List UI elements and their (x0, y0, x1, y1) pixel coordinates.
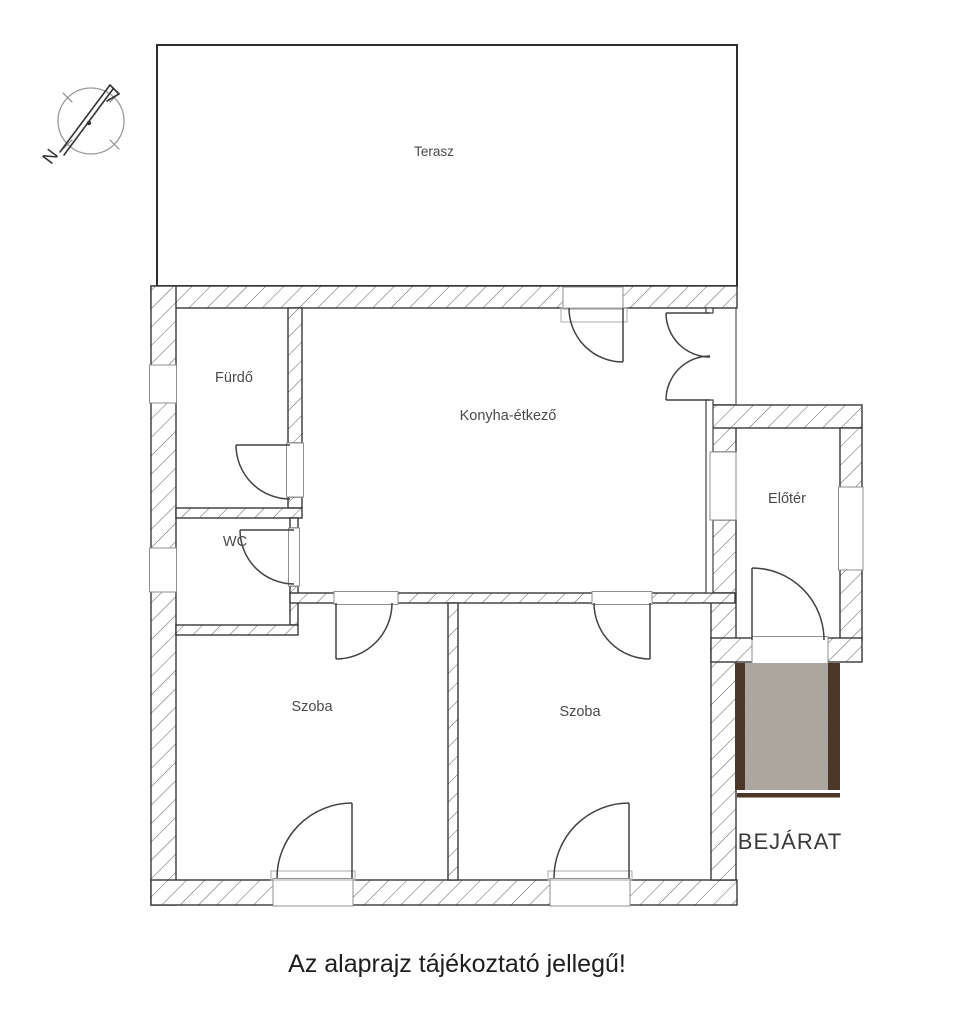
compass-north-letter: N (38, 145, 62, 167)
window-foyer-right (839, 487, 864, 570)
window-bottom-1 (273, 879, 353, 907)
entrance-threshold-line (737, 793, 840, 798)
room-label-wc: WC (223, 534, 247, 550)
compass-north-icon: N (38, 85, 124, 168)
kitchen-double-door-lower-swing (666, 356, 710, 400)
entrance-wood-strip-right (828, 663, 840, 790)
room-label-szoba-2: Szoba (559, 704, 601, 720)
window-left-2 (150, 548, 177, 592)
room1-door-swing (336, 603, 392, 659)
room-label-terasz: Terasz (414, 144, 454, 159)
wall-gap-foyer-left (710, 452, 736, 520)
wall-top (151, 286, 737, 308)
room-label-szoba-1: Szoba (291, 699, 333, 715)
wall-right-mid (711, 520, 736, 593)
wall-wc-right-upper (290, 518, 298, 528)
disclaimer-caption: Az alaprajz tájékoztató jellegű! (288, 950, 626, 978)
room-label-eloter: Előtér (768, 491, 806, 507)
wall-right-lower (711, 593, 736, 880)
terrace-door-swing (569, 308, 623, 362)
terrace-area (157, 45, 737, 286)
wall-bathroom-right (288, 308, 302, 443)
wall-foyer-top (711, 405, 862, 428)
wall-bathroom-right-stub (288, 497, 302, 508)
walls (151, 286, 862, 905)
entrance-pad (735, 663, 840, 798)
floorplan: N Terasz Fürdő Konyha-étkező WC Előtér S… (0, 0, 965, 1024)
door-opening-room2 (592, 592, 652, 605)
door-opening-bathroom (287, 443, 304, 497)
room-label-konyha-etkezo: Konyha-étkező (460, 408, 557, 424)
entrance-pad-texture (745, 663, 828, 790)
compass-ticks (63, 93, 119, 149)
floorplan-svg: N Terasz Fürdő Konyha-étkező WC Előtér S… (0, 0, 965, 1024)
door-opening-entrance (752, 637, 828, 664)
entrance-wood-strip-left (735, 663, 745, 790)
wall-room-divider (448, 603, 458, 880)
room2-door-swing (594, 603, 650, 659)
wc-door-swing (240, 530, 294, 584)
door-opening-room1 (334, 592, 398, 605)
terrace-outline (157, 45, 737, 286)
window-bottom-2 (550, 879, 630, 907)
wall-wc-bottom (176, 625, 298, 635)
window1-sash-swing (277, 803, 352, 878)
bathroom-door-swing (236, 445, 290, 499)
wall-wc-right-lower (290, 586, 298, 625)
entrance-label: BEJÁRAT (738, 829, 842, 854)
kitchen-double-door-upper-swing (666, 313, 710, 357)
wall-bathroom-bottom (176, 508, 302, 518)
compass-center-dot (87, 121, 91, 125)
entrance-door-swing (752, 568, 824, 640)
door-opening-wc (289, 528, 300, 586)
terrace-door-opening (563, 287, 623, 309)
wall-bottom (151, 880, 737, 905)
window2-sash-swing (554, 803, 629, 878)
window-left-1 (150, 365, 177, 403)
compass-needle (60, 85, 119, 155)
room-label-furdo: Fürdő (215, 370, 253, 386)
